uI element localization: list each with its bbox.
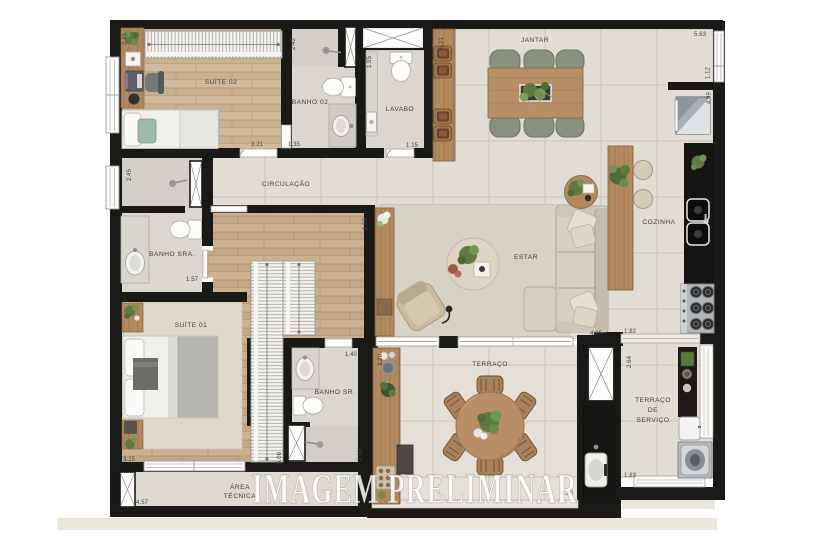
svg-text:SUÍTE 01: SUÍTE 01 xyxy=(175,320,208,329)
svg-text:TERRAÇO: TERRAÇO xyxy=(635,397,671,404)
svg-text:DE: DE xyxy=(648,407,658,414)
svg-text:CIRCULAÇÃO: CIRCULAÇÃO xyxy=(262,179,310,188)
svg-text:2.42: 2.42 xyxy=(291,37,297,50)
svg-text:6.21: 6.21 xyxy=(439,36,445,49)
svg-text:4.85: 4.85 xyxy=(590,331,603,337)
svg-text:LAVABO: LAVABO xyxy=(386,106,414,113)
svg-text:SUÍTE 02: SUÍTE 02 xyxy=(205,77,238,86)
svg-text:2.45: 2.45 xyxy=(127,168,133,181)
svg-text:2.30: 2.30 xyxy=(358,448,364,461)
svg-text:IMAGEM PRELIMINAR: IMAGEM PRELIMINAR xyxy=(252,467,578,513)
svg-text:2.45: 2.45 xyxy=(123,32,129,45)
svg-text:TERRAÇO: TERRAÇO xyxy=(472,361,508,368)
svg-text:BANHO SR.: BANHO SR. xyxy=(315,389,356,396)
svg-text:3.21: 3.21 xyxy=(251,142,264,148)
svg-text:BANHO 02: BANHO 02 xyxy=(292,99,329,106)
svg-text:BANHO SRA.: BANHO SRA. xyxy=(149,251,195,258)
svg-text:SERVIÇO: SERVIÇO xyxy=(636,417,669,424)
svg-text:1.15: 1.15 xyxy=(406,143,419,149)
svg-text:2.64: 2.64 xyxy=(627,355,633,368)
svg-text:1.57: 1.57 xyxy=(186,277,199,283)
svg-text:4.57: 4.57 xyxy=(136,500,149,506)
svg-text:5.63: 5.63 xyxy=(694,32,707,38)
svg-text:1.40: 1.40 xyxy=(345,352,358,358)
svg-text:2.55: 2.55 xyxy=(363,217,369,230)
svg-text:3.20: 3.20 xyxy=(378,353,384,366)
svg-text:1.83: 1.83 xyxy=(624,473,637,479)
svg-text:1.12: 1.12 xyxy=(706,66,712,79)
svg-text:JANTAR: JANTAR xyxy=(521,37,549,44)
svg-text:1.35: 1.35 xyxy=(288,142,301,148)
svg-text:5.06: 5.06 xyxy=(277,451,283,464)
svg-text:COZINHA: COZINHA xyxy=(642,219,675,226)
svg-text:ESTAR: ESTAR xyxy=(514,254,538,261)
svg-text:1.95: 1.95 xyxy=(367,55,373,68)
svg-text:4.99: 4.99 xyxy=(707,91,713,104)
svg-text:3.25: 3.25 xyxy=(123,457,136,463)
svg-text:ÁREA: ÁREA xyxy=(230,482,250,491)
svg-text:1.82: 1.82 xyxy=(624,329,637,335)
